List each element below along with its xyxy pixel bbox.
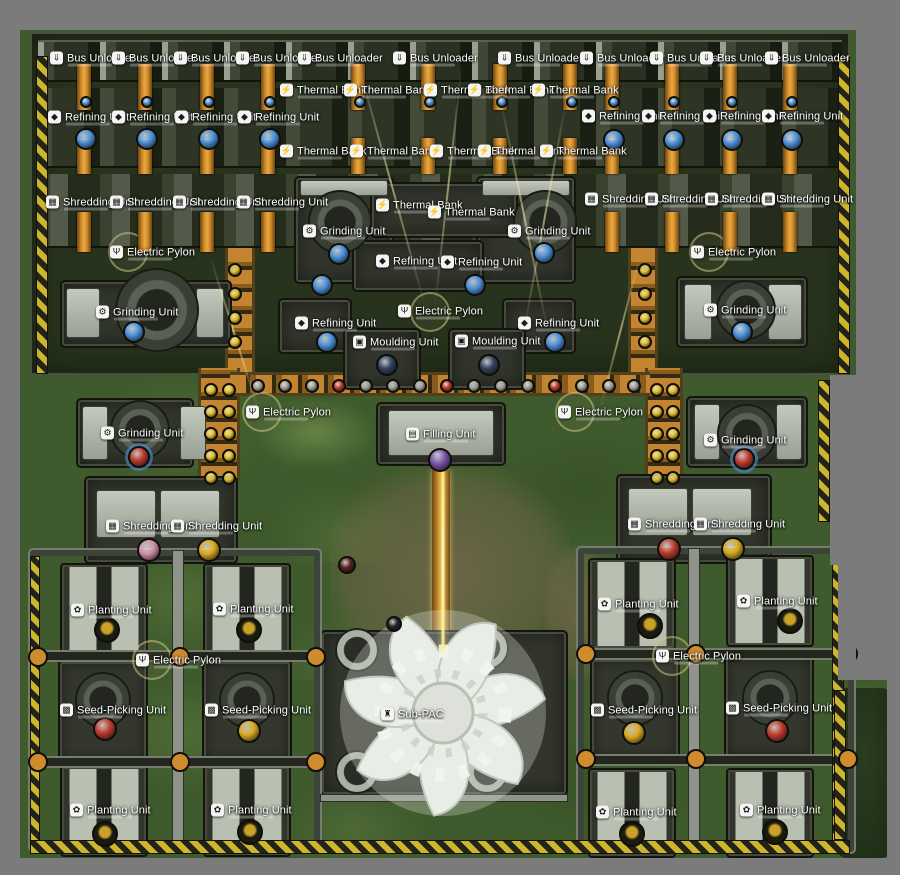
label-subtext	[256, 123, 300, 126]
seed-item	[777, 608, 803, 634]
label-subtext	[712, 530, 756, 533]
hazard-stripe	[838, 56, 850, 374]
grinding-unit-icon: ⚙	[101, 427, 114, 440]
planting-unit-name: Planting Unit	[615, 598, 679, 610]
label-subtext	[473, 347, 517, 350]
seed-picking-unit-label[interactable]: ▩Seed-Picking Unit	[591, 704, 697, 717]
planting-unit-label[interactable]: ✿Planting Unit	[211, 804, 292, 817]
electric-pylon-name: Electric Pylon	[153, 654, 221, 666]
conveyor-item	[222, 383, 236, 397]
label-subtext	[130, 64, 174, 67]
label-subtext	[193, 123, 237, 126]
thermal-bank-icon: ⚡	[344, 84, 357, 97]
refining-unit-name: Refining Unit	[458, 256, 522, 268]
bus-unloader-name: Bus Unloader	[315, 52, 383, 64]
refining-unit-name: Refining Unit	[535, 317, 599, 329]
conveyor-item	[666, 471, 680, 485]
conveyor-item	[204, 405, 218, 419]
shredding-unit-label[interactable]: ▦Shredding Unit	[762, 193, 853, 206]
seed-picking-unit-label[interactable]: ▩Seed-Picking Unit	[205, 704, 311, 717]
shredding-unit-icon: ▦	[173, 196, 186, 209]
label-subtext	[394, 267, 438, 270]
bus-unloader-icon: ⇓	[498, 52, 511, 65]
shredding-unit-icon: ▦	[694, 518, 707, 531]
conveyor-item	[80, 96, 92, 108]
factory-map: ⇓Bus Unloader⇓Bus Unloader⇓Bus Unloader⇓…	[0, 0, 900, 875]
thermal-bank-icon: ⚡	[280, 84, 293, 97]
thermal-bank-label[interactable]: ⚡Thermal Bank	[350, 145, 437, 158]
conveyor-item	[136, 128, 158, 150]
electric-pylon-icon: Ψ	[691, 246, 704, 259]
label-subtext	[192, 64, 236, 67]
pipe-pump	[576, 749, 596, 769]
electric-pylon-label[interactable]: ΨElectric Pylon	[110, 246, 195, 259]
seed-item	[92, 821, 118, 847]
conveyor-item	[521, 379, 535, 393]
label-subtext	[446, 218, 490, 221]
bus-unloader-icon: ⇓	[580, 52, 593, 65]
conveyor-item	[464, 274, 486, 296]
filling-unit-label[interactable]: ▤Filling Unit	[406, 428, 476, 441]
conveyor-item	[733, 448, 755, 470]
conveyor-item	[203, 96, 215, 108]
conveyor-item	[627, 379, 641, 393]
label-subtext	[614, 818, 658, 821]
refining-unit-icon: ◆	[48, 111, 61, 124]
conveyor-item	[650, 383, 664, 397]
conveyor-item	[666, 405, 680, 419]
label-subtext	[119, 439, 163, 442]
planting-unit-icon: ✿	[71, 604, 84, 617]
seed-picking-unit-label[interactable]: ▩Seed-Picking Unit	[60, 704, 166, 717]
label-subtext	[709, 258, 753, 261]
shredding-unit-name: Shredding Unit	[254, 196, 328, 208]
electric-pylon-icon: Ψ	[246, 406, 259, 419]
planting-unit-icon: ✿	[740, 804, 753, 817]
conveyor-item	[93, 717, 117, 741]
refining-unit-icon: ◆	[518, 317, 531, 330]
conveyor-item	[305, 379, 319, 393]
conveyor-item	[251, 379, 265, 393]
seed-picking-unit-name: Seed-Picking Unit	[77, 704, 166, 716]
label-subtext	[229, 816, 273, 819]
conveyor-item	[781, 129, 803, 151]
refining-unit-label[interactable]: ◆Refining Unit	[238, 111, 319, 124]
refining-unit-label[interactable]: ◆Refining Unit	[762, 110, 843, 123]
conveyor-belt	[77, 212, 91, 252]
moulding-unit-name: Moulding Unit	[472, 335, 541, 347]
label-subtext	[646, 530, 690, 533]
seed-picking-unit-name: Seed-Picking Unit	[743, 702, 832, 714]
pipe-pump	[306, 752, 326, 772]
planting-unit-icon: ✿	[596, 806, 609, 819]
conveyor-item	[75, 128, 97, 150]
machine-housing	[776, 404, 802, 460]
conveyor-item	[137, 538, 161, 562]
label-subtext	[516, 64, 560, 67]
refining-unit-icon: ◆	[582, 110, 595, 123]
shredding-unit-icon: ▦	[705, 193, 718, 206]
planting-unit-label[interactable]: ✿Planting Unit	[598, 598, 679, 611]
refining-unit-icon: ◆	[175, 111, 188, 124]
label-subtext	[223, 716, 267, 719]
electric-pylon-icon: Ψ	[136, 654, 149, 667]
grinding-unit-name: Grinding Unit	[113, 306, 179, 318]
thermal-bank-label[interactable]: ⚡Thermal Bank	[540, 145, 627, 158]
electric-pylon-label[interactable]: ΨElectric Pylon	[246, 406, 331, 419]
conveyor-item	[204, 471, 218, 485]
shredding-unit-name: Shredding Unit	[711, 518, 785, 530]
conveyor-item	[650, 449, 664, 463]
label-subtext	[191, 208, 235, 211]
pipe-pump	[306, 647, 326, 667]
conveyor-item	[533, 242, 555, 264]
shredding-unit-label[interactable]: ▦Shredding Unit	[237, 196, 328, 209]
seed-picking-unit-icon: ▩	[591, 704, 604, 717]
machine-housing	[66, 288, 100, 338]
thermal-bank-label[interactable]: ⚡Thermal Bank	[532, 84, 619, 97]
filling-unit-name: Filling Unit	[423, 428, 476, 440]
grinding-unit-icon: ⚙	[96, 306, 109, 319]
conveyor-belt	[605, 212, 619, 252]
conveyor-item	[638, 335, 652, 349]
thermal-bank-label[interactable]: ⚡Thermal Bank	[344, 84, 431, 97]
label-subtext	[550, 96, 594, 99]
refining-unit-icon: ◆	[238, 111, 251, 124]
conveyor-item	[222, 427, 236, 441]
conveyor-belt	[200, 212, 214, 252]
grinding-unit-label[interactable]: ⚙Grinding Unit	[704, 434, 787, 447]
bus-unloader-icon: ⇓	[650, 52, 663, 65]
seed-item	[94, 617, 120, 643]
moulding-unit-label[interactable]: ▣Moulding Unit	[455, 335, 541, 348]
label-subtext	[130, 123, 174, 126]
conveyor-item	[721, 537, 745, 561]
shredding-unit-icon: ▦	[645, 193, 658, 206]
refining-unit-icon: ◆	[703, 110, 716, 123]
thermal-bank-icon: ⚡	[532, 84, 545, 97]
electric-pylon-label[interactable]: ΨElectric Pylon	[558, 406, 643, 419]
label-subtext	[231, 615, 275, 618]
conveyor-item	[264, 96, 276, 108]
label-subtext	[313, 329, 357, 332]
label-subtext	[368, 157, 412, 160]
label-subtext	[362, 96, 406, 99]
label-subtext	[124, 532, 168, 535]
conveyor-item	[413, 379, 427, 393]
label-subtext	[264, 418, 308, 421]
electric-pylon-label[interactable]: ΨElectric Pylon	[398, 305, 483, 318]
refining-unit-icon: ◆	[295, 317, 308, 330]
machine-housing	[196, 288, 224, 338]
shredding-unit-name: Shredding Unit	[779, 193, 853, 205]
conveyor-item	[204, 449, 218, 463]
conveyor-item	[228, 335, 242, 349]
planting-unit-icon: ✿	[70, 804, 83, 817]
conveyor-item	[638, 287, 652, 301]
conveyor-item	[311, 274, 333, 296]
bus-unloader-label[interactable]: ⇓Bus Unloader	[393, 52, 478, 65]
label-subtext	[254, 64, 298, 67]
bus-unloader-icon: ⇓	[50, 52, 63, 65]
conveyor-item	[128, 446, 150, 468]
grinding-unit-icon: ⚙	[704, 434, 717, 447]
label-subtext	[603, 205, 647, 208]
label-subtext	[576, 418, 620, 421]
planting-unit-label[interactable]: ✿Planting Unit	[71, 604, 152, 617]
bus-unloader-icon: ⇓	[298, 52, 311, 65]
conveyor-item	[668, 96, 680, 108]
bus-unloader-icon: ⇓	[700, 52, 713, 65]
conveyor-item	[666, 427, 680, 441]
label-subtext	[616, 610, 660, 613]
pipe-pump	[838, 749, 858, 769]
refining-unit-name: Refining Unit	[779, 110, 843, 122]
electric-pylon-name: Electric Pylon	[263, 406, 331, 418]
conveyor-item	[608, 96, 620, 108]
label-subtext	[154, 666, 198, 669]
pipe-pump	[28, 752, 48, 772]
label-subtext	[558, 157, 602, 160]
thermal-bank-icon: ⚡	[424, 84, 437, 97]
bus-unloader-icon: ⇓	[112, 52, 125, 65]
planting-unit-label[interactable]: ✿Planting Unit	[737, 595, 818, 608]
thermal-bank-name: Thermal Bank	[361, 84, 431, 96]
pipe-pump	[686, 749, 706, 769]
grinding-unit-label[interactable]: ⚙Grinding Unit	[704, 304, 787, 317]
grinding-unit-icon: ⚙	[704, 304, 717, 317]
shredding-unit-icon: ▦	[628, 518, 641, 531]
label-subtext	[526, 237, 570, 240]
conveyor-belt	[261, 212, 275, 252]
label-subtext	[411, 64, 455, 67]
hazard-stripe	[30, 840, 850, 854]
label-subtext	[416, 317, 460, 320]
thermal-bank-name: Thermal Bank	[367, 145, 437, 157]
electric-pylon-label[interactable]: ΨElectric Pylon	[691, 246, 776, 259]
conveyor-item	[657, 537, 681, 561]
wall	[172, 550, 184, 850]
conveyor-item	[338, 556, 356, 574]
conveyor-item	[222, 449, 236, 463]
conveyor-item	[622, 721, 646, 745]
bus-unloader-label[interactable]: ⇓Bus Unloader	[298, 52, 383, 65]
label-subtext	[424, 440, 468, 443]
electric-pylon-label[interactable]: ΨElectric Pylon	[656, 650, 741, 663]
conveyor-item	[259, 128, 281, 150]
label-subtext	[64, 208, 108, 211]
refining-unit-icon: ◆	[376, 255, 389, 268]
conveyor-item	[638, 311, 652, 325]
label-subtext	[66, 123, 110, 126]
pipe-pump	[576, 644, 596, 664]
planting-unit-icon: ✿	[211, 804, 224, 817]
grinding-unit-name: Grinding Unit	[721, 304, 787, 316]
grinding-unit-name: Grinding Unit	[118, 427, 184, 439]
label-subtext	[598, 64, 642, 67]
shredding-unit-icon: ▦	[171, 520, 184, 533]
bus-unloader-label[interactable]: ⇓Bus Unloader	[498, 52, 583, 65]
thermal-bank-name: Thermal Bank	[549, 84, 619, 96]
electric-pylon-name: Electric Pylon	[575, 406, 643, 418]
conveyor-item	[204, 427, 218, 441]
label-subtext	[723, 205, 767, 208]
label-subtext	[600, 122, 644, 125]
label-subtext	[128, 208, 172, 211]
conveyor-item	[386, 379, 400, 393]
shredding-unit-icon: ▦	[585, 193, 598, 206]
bus-unloader-name: Bus Unloader	[410, 52, 478, 64]
planting-unit-name: Planting Unit	[754, 595, 818, 607]
thermal-bank-icon: ⚡	[478, 145, 491, 158]
label-subtext	[721, 122, 765, 125]
grinding-unit-icon: ⚙	[508, 225, 521, 238]
sub-pac-icon: ♜	[381, 708, 394, 721]
label-subtext	[674, 662, 718, 665]
grinding-unit-label[interactable]: ⚙Grinding Unit	[96, 306, 179, 319]
conveyor-item	[359, 379, 373, 393]
seed-item	[762, 819, 788, 845]
planting-unit-name: Planting Unit	[228, 804, 292, 816]
planting-unit-name: Planting Unit	[88, 604, 152, 616]
moulding-unit-label[interactable]: ▣Moulding Unit	[353, 336, 439, 349]
planting-unit-label[interactable]: ✿Planting Unit	[213, 603, 294, 616]
label-subtext	[78, 716, 122, 719]
seed-picking-unit-name: Seed-Picking Unit	[222, 704, 311, 716]
label-subtext	[783, 64, 827, 67]
label-subtext	[255, 208, 299, 211]
screenshot-gap	[838, 565, 856, 680]
conveyor-item	[548, 379, 562, 393]
label-subtext	[755, 607, 799, 610]
grinding-unit-label[interactable]: ⚙Grinding Unit	[508, 225, 591, 238]
bus-unloader-name: Bus Unloader	[782, 52, 850, 64]
bus-unloader-label[interactable]: ⇓Bus Unloader	[765, 52, 850, 65]
planting-unit-label[interactable]: ✿Planting Unit	[70, 804, 151, 817]
thermal-bank-icon: ⚡	[540, 145, 553, 158]
conveyor-item	[278, 379, 292, 393]
grinding-unit-name: Grinding Unit	[320, 225, 386, 237]
label-subtext	[316, 64, 360, 67]
bus-unloader-icon: ⇓	[765, 52, 778, 65]
planting-unit-icon: ✿	[598, 598, 611, 611]
moulding-unit-icon: ▣	[353, 336, 366, 349]
seed-picking-unit-label[interactable]: ▩Seed-Picking Unit	[726, 702, 832, 715]
conveyor-item	[376, 354, 398, 376]
seed-picking-unit-name: Seed-Picking Unit	[608, 704, 697, 716]
seed-item	[637, 613, 663, 639]
label-subtext	[486, 96, 530, 99]
conveyor-item	[123, 321, 145, 343]
screenshot-gap	[887, 680, 900, 858]
planting-unit-icon: ✿	[213, 603, 226, 616]
conveyor-item	[222, 471, 236, 485]
label-subtext	[88, 816, 132, 819]
sub-pac-label[interactable]: ♜Sub-PAC	[381, 708, 444, 721]
seed-picking-unit-icon: ▩	[60, 704, 73, 717]
conveyor-item	[650, 471, 664, 485]
thermal-bank-label[interactable]: ⚡Thermal Bank	[428, 206, 515, 219]
conveyor-belt	[665, 212, 679, 252]
label-subtext	[496, 157, 540, 160]
electric-pylon-icon: Ψ	[398, 305, 411, 318]
conveyor-item	[222, 405, 236, 419]
thermal-bank-icon: ⚡	[350, 145, 363, 158]
conveyor-item	[666, 383, 680, 397]
thermal-bank-icon: ⚡	[430, 145, 443, 158]
thermal-bank-icon: ⚡	[280, 145, 293, 158]
conveyor-item	[228, 287, 242, 301]
conveyor-item	[440, 379, 454, 393]
planting-unit-name: Planting Unit	[230, 603, 294, 615]
label-subtext	[722, 446, 766, 449]
seed-item	[619, 821, 645, 847]
label-subtext	[780, 122, 824, 125]
label-subtext	[189, 532, 233, 535]
conveyor-item	[204, 383, 218, 397]
moulding-unit-icon: ▣	[455, 335, 468, 348]
grinding-unit-name: Grinding Unit	[525, 225, 591, 237]
conveyor-item	[666, 449, 680, 463]
refining-unit-label[interactable]: ◆Refining Unit	[441, 256, 522, 269]
conveyor-item	[386, 616, 402, 632]
conveyor-item	[575, 379, 589, 393]
label-subtext	[459, 268, 503, 271]
refining-unit-label[interactable]: ◆Refining Unit	[295, 317, 376, 330]
screenshot-gap	[830, 375, 856, 565]
thermal-bank-name: Thermal Bank	[557, 145, 627, 157]
label-subtext	[758, 816, 802, 819]
label-subtext	[89, 616, 133, 619]
shredding-unit-icon: ▦	[46, 196, 59, 209]
shredding-unit-label[interactable]: ▦Shredding Unit	[171, 520, 262, 533]
grinding-unit-label[interactable]: ⚙Grinding Unit	[101, 427, 184, 440]
grinding-unit-icon: ⚙	[303, 225, 316, 238]
label-subtext	[780, 205, 824, 208]
shredding-unit-name: Shredding Unit	[188, 520, 262, 532]
seed-picking-unit-icon: ▩	[726, 702, 739, 715]
conveyor-item	[602, 379, 616, 393]
label-subtext	[660, 122, 704, 125]
shredding-unit-label[interactable]: ▦Shredding Unit	[694, 518, 785, 531]
bus-unloader-icon: ⇓	[236, 52, 249, 65]
conveyor-item	[765, 719, 789, 743]
refining-unit-icon: ◆	[642, 110, 655, 123]
grinding-unit-label[interactable]: ⚙Grinding Unit	[303, 225, 386, 238]
refining-unit-icon: ◆	[112, 111, 125, 124]
thermal-bank-icon: ⚡	[468, 84, 481, 97]
conveyor-item	[141, 96, 153, 108]
label-subtext	[298, 157, 342, 160]
conveyor-item	[198, 128, 220, 150]
thermal-bank-icon: ⚡	[428, 206, 441, 219]
seed-item	[236, 617, 262, 643]
conveyor-item	[237, 719, 261, 743]
conveyor-item	[228, 263, 242, 277]
electric-pylon-icon: Ψ	[656, 650, 669, 663]
planting-unit-name: Planting Unit	[757, 804, 821, 816]
wall	[688, 548, 700, 852]
planting-unit-label[interactable]: ✿Planting Unit	[740, 804, 821, 817]
label-subtext	[128, 258, 172, 261]
conveyor-item	[328, 243, 350, 265]
planting-unit-label[interactable]: ✿Planting Unit	[596, 806, 677, 819]
refining-unit-label[interactable]: ◆Refining Unit	[518, 317, 599, 330]
refining-unit-icon: ◆	[762, 110, 775, 123]
power-beam	[442, 472, 445, 652]
conveyor-item	[663, 129, 685, 151]
electric-pylon-label[interactable]: ΨElectric Pylon	[136, 654, 221, 667]
